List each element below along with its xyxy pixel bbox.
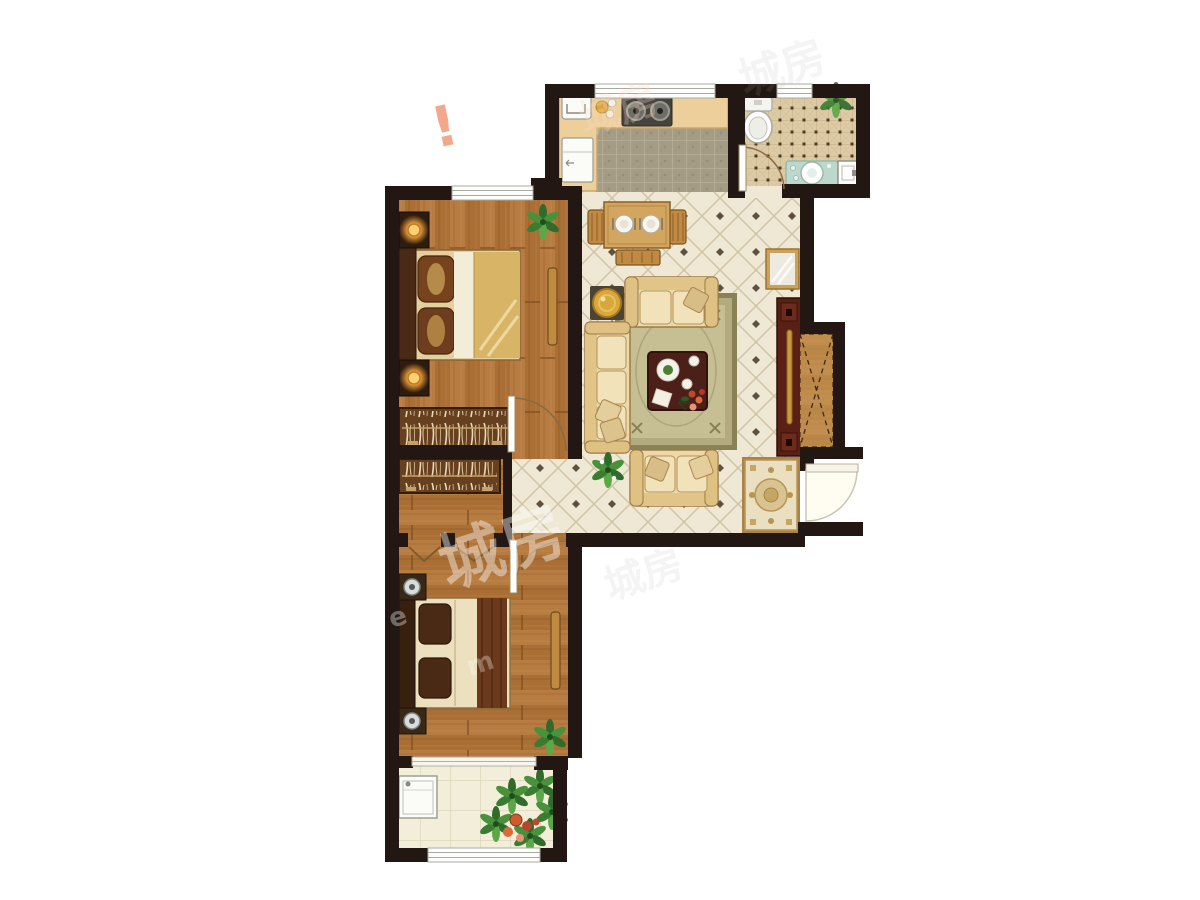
watermark-text: 城房 xyxy=(599,541,689,609)
nightstand-lamp xyxy=(399,212,429,248)
bedroom1-window xyxy=(452,186,533,200)
dining-bench xyxy=(616,250,660,265)
cabinet-handle xyxy=(787,330,792,424)
teacup xyxy=(682,379,692,389)
tv-cabinet xyxy=(777,298,801,456)
floor-plan-screenshot: 城房 e m ! 城房 城房 城房 xyxy=(0,0,1200,900)
bath-vanity xyxy=(786,161,838,186)
plant-flower xyxy=(612,476,616,480)
sofa-left xyxy=(585,322,630,453)
side-table-round xyxy=(590,286,624,320)
pillow xyxy=(419,658,451,698)
watermark-text: ! xyxy=(425,93,464,162)
teacup xyxy=(689,356,699,366)
wall-mirror xyxy=(766,249,799,289)
nightstand-lamp xyxy=(399,708,426,734)
washbasin-unit xyxy=(838,161,858,185)
walk-in-closet xyxy=(399,459,500,493)
balcony-sliding-door xyxy=(412,757,536,766)
bedroom1-bench xyxy=(548,268,557,345)
bedroom1-wardrobe xyxy=(399,408,513,448)
floor-plan-svg: 城房 e m ! 城房 城房 城房 xyxy=(0,0,1200,900)
bedroom2-bench xyxy=(551,612,560,689)
nightstand-lamp xyxy=(399,574,426,600)
balcony-window xyxy=(428,848,540,862)
sofa-top xyxy=(625,277,718,327)
bedroom2-bed xyxy=(399,596,510,710)
entry-rug xyxy=(742,457,800,533)
washing-machine xyxy=(399,776,437,818)
entry-door xyxy=(806,464,858,521)
plant-flower xyxy=(600,460,604,464)
pillow xyxy=(419,604,451,644)
coffee-table xyxy=(648,352,707,411)
entry-cabinet xyxy=(800,334,833,447)
sofa-bottom xyxy=(630,450,718,506)
nightstand-lamp xyxy=(399,360,429,396)
headboard xyxy=(399,246,416,364)
bed-sheet xyxy=(454,252,474,358)
closet-wardrobe xyxy=(399,459,500,493)
fridge xyxy=(562,138,593,182)
bedroom1-bed xyxy=(399,246,520,364)
kitchen-floor xyxy=(595,126,728,192)
bath-doorway-floor xyxy=(745,186,782,198)
